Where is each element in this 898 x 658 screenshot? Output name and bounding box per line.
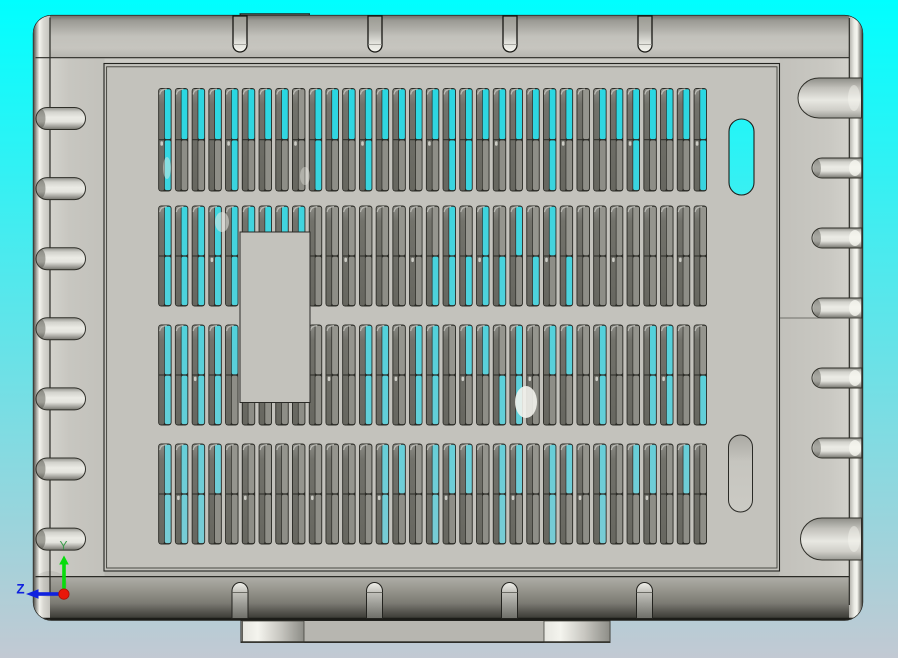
svg-text:Z: Z (16, 582, 24, 597)
svg-text:Y: Y (59, 539, 67, 553)
